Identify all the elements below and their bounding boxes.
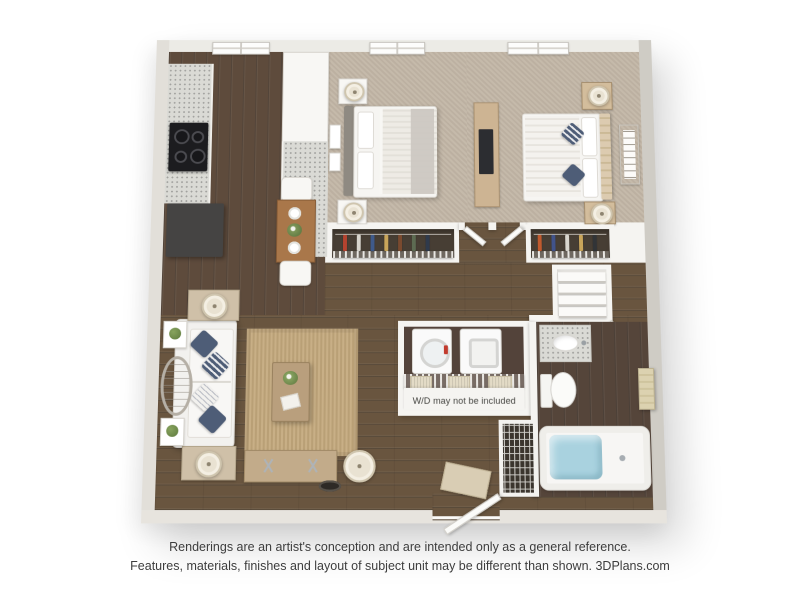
hanging-clothes (579, 235, 583, 251)
floor-vent (319, 480, 341, 491)
refrigerator (166, 203, 224, 256)
bed1-pillow (357, 152, 374, 190)
laundry-closet: W/D may not be included (398, 321, 531, 416)
table-lamp (591, 203, 613, 224)
dining-chair (279, 261, 311, 286)
wall-segment (488, 222, 496, 230)
bathroom-vanity (539, 325, 592, 362)
floorplan-rendering: W/D may not be included (141, 40, 667, 523)
magazine (280, 393, 301, 411)
closet-shelf (333, 251, 453, 258)
shelf (559, 307, 607, 318)
table-lamp (344, 82, 364, 101)
bed1-headboard (343, 106, 353, 196)
bed1-pillow (357, 112, 374, 149)
dryer (460, 329, 502, 374)
kitchen-tall-cabinet (282, 52, 330, 143)
washer-handle (444, 345, 448, 354)
dresser (474, 102, 500, 207)
burner-icon (174, 151, 187, 163)
bathtub (539, 426, 652, 491)
burner-icon (191, 131, 204, 143)
tv (479, 129, 494, 174)
wall-art-plant (163, 321, 188, 348)
media-console (244, 450, 338, 482)
hanging-clothes (426, 235, 430, 251)
plate (288, 207, 301, 219)
bedroom2-closet (526, 224, 615, 262)
sofa-cushion-divider (189, 381, 231, 383)
hanging-clothes (412, 235, 416, 251)
bed2-pillow (582, 158, 599, 198)
washer (412, 329, 452, 374)
laundry-wire-shelf (404, 374, 524, 388)
x-leg (302, 458, 324, 473)
x-leg (257, 458, 280, 473)
hanging-clothes (565, 235, 569, 251)
bedroom2-window (507, 42, 569, 55)
sink (551, 334, 579, 353)
closet-shelf (532, 251, 609, 258)
table-flowers (287, 223, 302, 236)
stove-cooktop (168, 123, 208, 172)
disclaimer-line-1: Renderings are an artist's conception an… (0, 540, 800, 554)
bed2-mattress (522, 113, 604, 201)
hanging-clothes (593, 235, 597, 251)
wd-note: W/D may not be included (404, 388, 525, 410)
closet-rod (335, 234, 451, 235)
hanging-clothes (538, 235, 542, 251)
hanging-clothes (384, 235, 388, 251)
wall-art (329, 125, 341, 149)
wall-sign (619, 125, 640, 185)
hanging-clothes (398, 235, 402, 251)
wall-art-plant (160, 418, 185, 446)
hanging-clothes (551, 235, 555, 251)
wall-art (329, 153, 341, 172)
coffee-table (271, 362, 310, 422)
wd-note-label: W/D may not be included (413, 397, 516, 410)
burner-icon (174, 129, 190, 144)
bedroom1-closet (327, 224, 459, 262)
disclaimer: Renderings are an artist's conception an… (0, 540, 800, 578)
floor-lamp (343, 450, 376, 482)
toilet (550, 372, 577, 408)
shelf (558, 284, 606, 295)
table-lamp (343, 202, 364, 222)
disclaimer-line-2: Features, materials, finishes and layout… (0, 559, 800, 573)
bedroom1-window (369, 42, 425, 55)
shelf (558, 296, 606, 307)
apartment-outer-walls: W/D may not be included (141, 40, 667, 523)
hanging-clothes (343, 235, 347, 251)
tub-faucet (619, 455, 625, 461)
bathtub-water (549, 435, 603, 480)
linen-shelf-closet (552, 265, 613, 321)
table-lamp (588, 86, 610, 106)
hanging-clothes (357, 235, 361, 251)
dining-chair (281, 177, 313, 202)
hanging-clothes (371, 235, 375, 251)
wire-linen-closet (499, 420, 539, 497)
dryer-door (469, 338, 499, 368)
burner-icon (190, 149, 206, 164)
shelf (558, 272, 606, 283)
bed1-mattress (353, 106, 437, 198)
bed2-pillow (581, 117, 597, 156)
kitchen-window (212, 42, 270, 55)
faucet (581, 340, 586, 345)
wall-bottom (141, 510, 667, 523)
bed1-blanket (411, 109, 435, 194)
towel (638, 368, 655, 410)
flower-vase (283, 371, 298, 385)
